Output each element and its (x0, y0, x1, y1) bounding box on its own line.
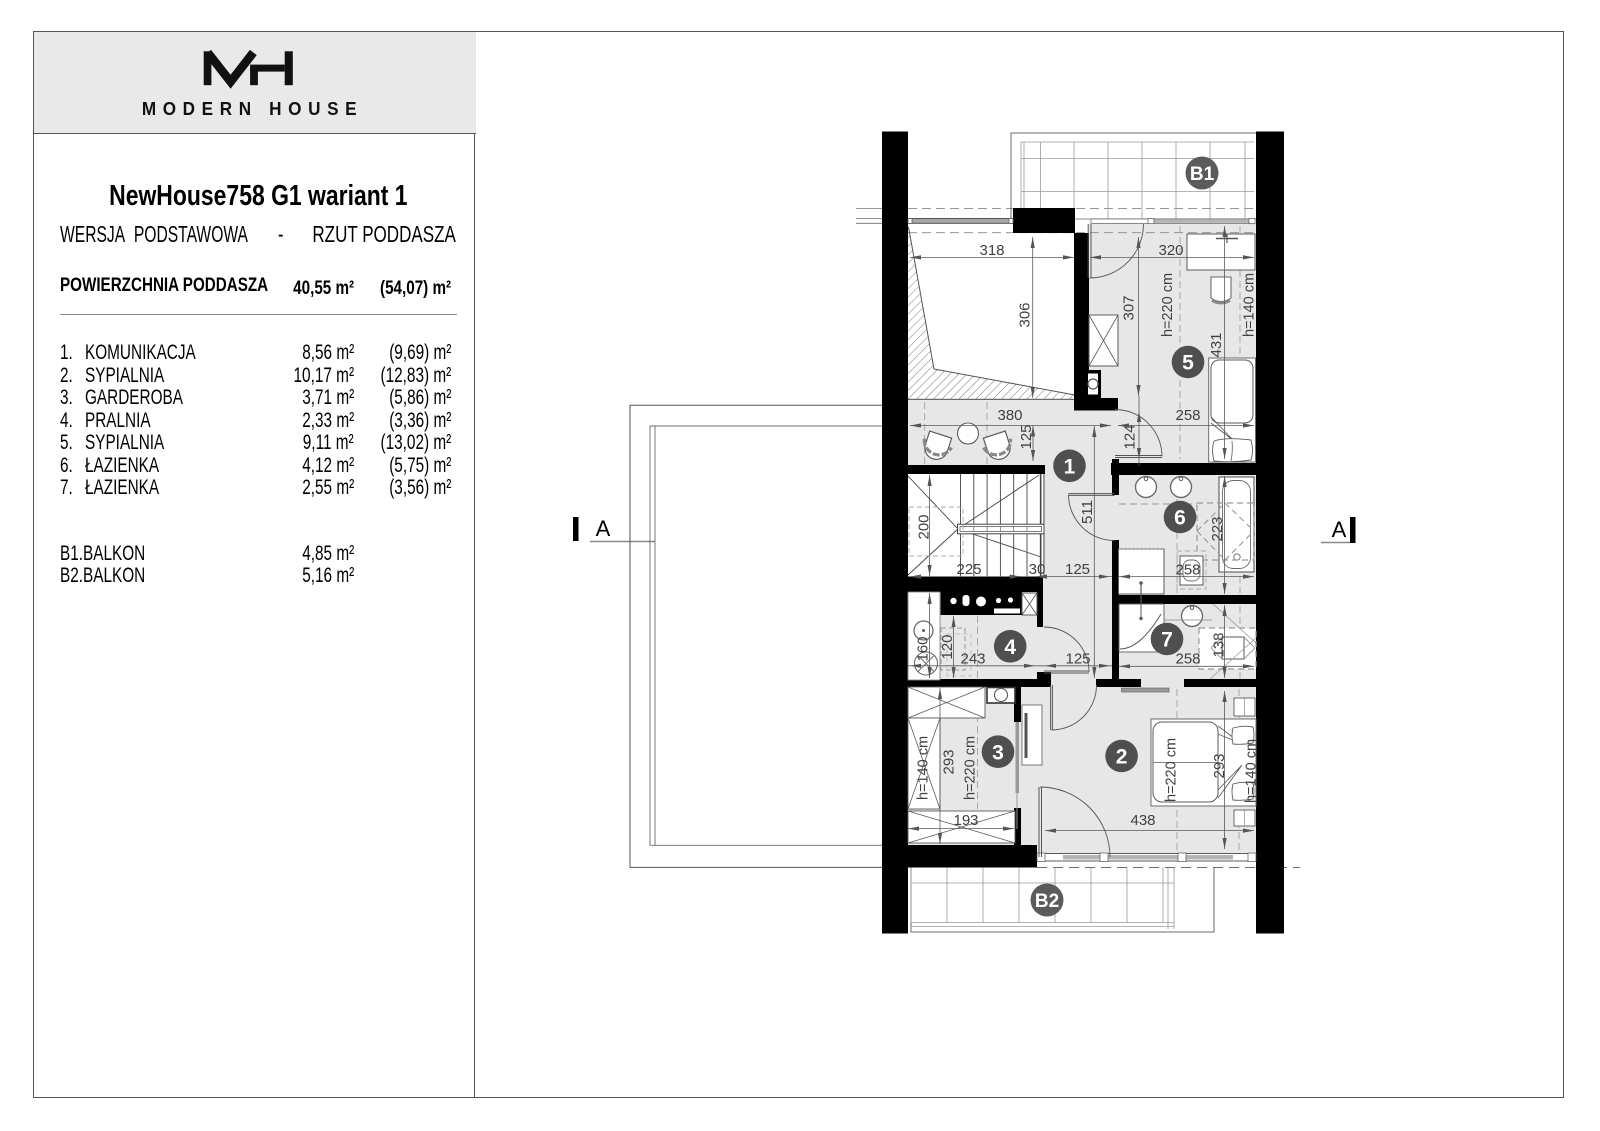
svg-text:1: 1 (1064, 455, 1076, 478)
svg-text:320: 320 (1158, 242, 1183, 259)
svg-text:431: 431 (1208, 332, 1225, 357)
svg-text:A: A (596, 516, 611, 541)
svg-text:318: 318 (979, 242, 1004, 259)
svg-text:124: 124 (1122, 424, 1139, 449)
svg-text:125: 125 (1065, 651, 1090, 668)
svg-text:438: 438 (1130, 812, 1155, 829)
svg-text:258: 258 (1175, 407, 1200, 424)
svg-text:h=220 cm: h=220 cm (1160, 273, 1176, 337)
svg-text:380: 380 (997, 407, 1022, 424)
svg-text:7: 7 (1161, 629, 1173, 652)
svg-text:4: 4 (1004, 636, 1016, 659)
svg-text:h=140 cm: h=140 cm (1242, 273, 1258, 337)
svg-text:258: 258 (1175, 651, 1200, 668)
svg-text:h=220 cm: h=220 cm (963, 736, 979, 800)
svg-text:225: 225 (956, 561, 981, 578)
svg-text:6: 6 (1174, 507, 1186, 530)
svg-text:138: 138 (1211, 632, 1228, 657)
svg-text:293: 293 (1211, 753, 1228, 778)
svg-text:30: 30 (1029, 561, 1046, 578)
svg-text:h=220 cm: h=220 cm (1164, 738, 1180, 802)
svg-text:243: 243 (960, 651, 985, 668)
svg-text:B1: B1 (1190, 164, 1215, 185)
svg-text:3: 3 (992, 741, 1004, 764)
svg-text:193: 193 (953, 812, 978, 829)
svg-text:2: 2 (1116, 746, 1128, 769)
svg-text:306: 306 (1017, 302, 1034, 327)
svg-text:5: 5 (1182, 352, 1194, 375)
svg-text:h=140 cm: h=140 cm (916, 736, 932, 800)
svg-text:293: 293 (941, 749, 958, 774)
svg-text:B2: B2 (1035, 891, 1059, 912)
svg-text:307: 307 (1121, 295, 1138, 320)
svg-text:125: 125 (1018, 424, 1035, 449)
svg-text:223: 223 (1209, 516, 1226, 541)
svg-text:125: 125 (1065, 561, 1090, 578)
svg-text:120: 120 (939, 634, 956, 659)
svg-text:h=140 cm: h=140 cm (1244, 739, 1260, 803)
svg-text:511: 511 (1079, 500, 1096, 524)
svg-text:A: A (1332, 517, 1347, 542)
svg-text:160: 160 (915, 636, 932, 661)
svg-text:200: 200 (916, 514, 933, 539)
svg-text:258: 258 (1175, 562, 1200, 579)
